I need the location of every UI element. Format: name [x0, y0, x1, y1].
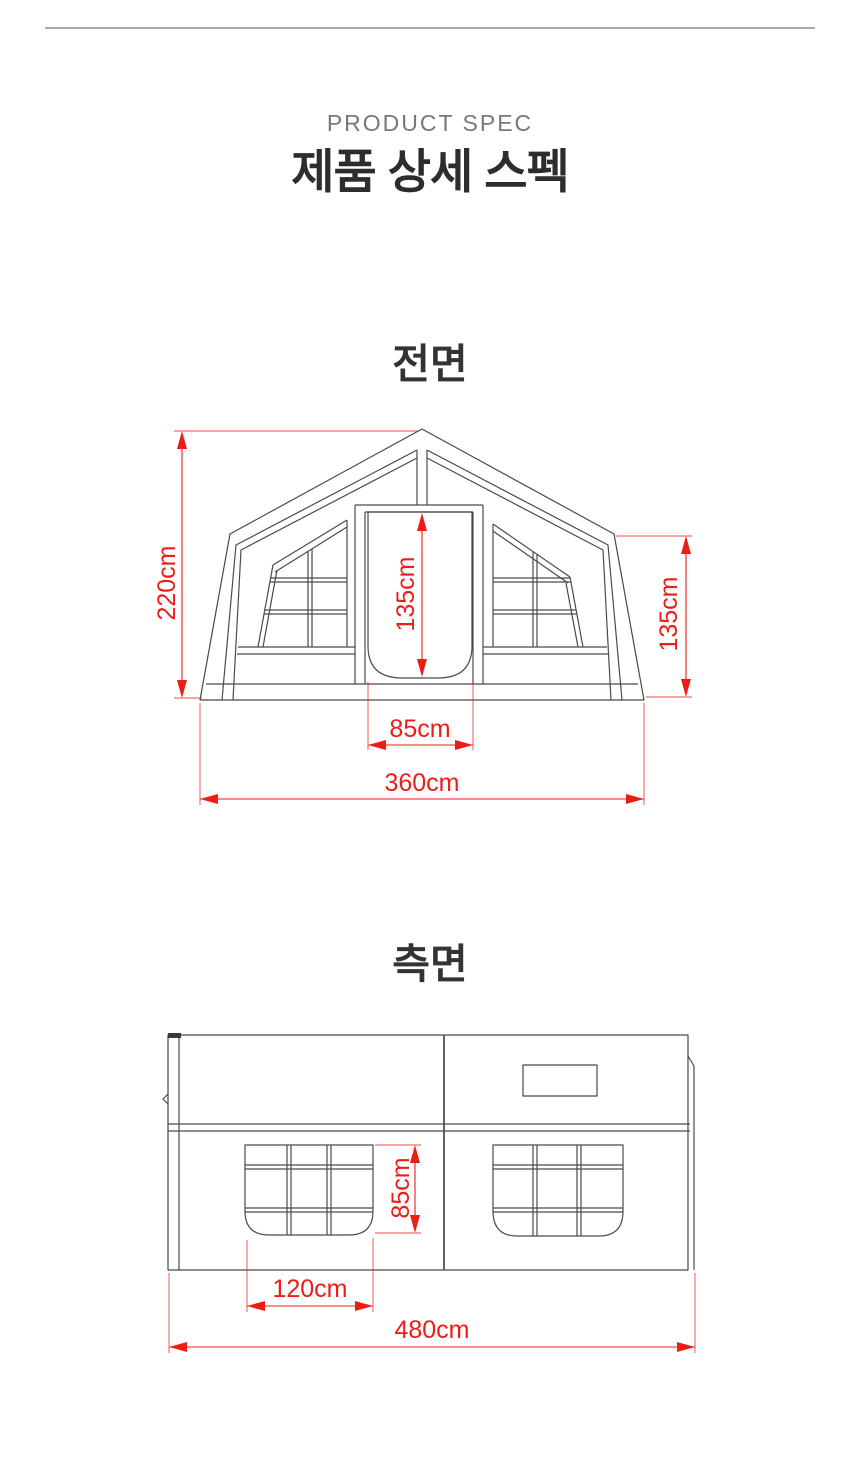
- side-view-dimensions: 85cm 120cm 480cm: [169, 1145, 695, 1353]
- front-total-height-label: 220cm: [153, 545, 181, 620]
- product-spec-page: PRODUCT SPEC 제품 상세 스펙 전면: [0, 0, 860, 1472]
- center-pole: [417, 450, 427, 505]
- arrow-down: [177, 680, 187, 698]
- page-title: 제품 상세 스펙: [0, 133, 860, 202]
- front-view-heading: 전면: [0, 330, 860, 390]
- side-window-width-label: 120cm: [272, 1275, 347, 1303]
- front-door-width-label: 85cm: [389, 715, 450, 743]
- tent-side-structure: [163, 1033, 694, 1270]
- top-left-tab: [168, 1033, 181, 1038]
- arrow-down: [417, 659, 427, 677]
- eave-band: [168, 1124, 690, 1131]
- vent-window: [523, 1065, 597, 1096]
- front-total-width-label: 360cm: [384, 769, 459, 797]
- front-view-dimensions: 220cm 135cm 135cm 85cm 360cm: [153, 431, 692, 805]
- front-right-window: [493, 524, 583, 647]
- arrow-left: [368, 740, 386, 750]
- arrow-right: [455, 740, 473, 750]
- door-panel: [368, 512, 472, 678]
- top-divider: [45, 27, 815, 29]
- front-wall-height-label: 135cm: [655, 576, 683, 651]
- arrow-right: [626, 794, 644, 804]
- right-edge-flap: [688, 1056, 694, 1270]
- side-view-diagram: 85cm 120cm 480cm: [60, 1020, 810, 1365]
- arrow-down: [681, 679, 691, 697]
- left-edge-notch: [163, 1094, 168, 1104]
- arrow-right: [355, 1301, 373, 1311]
- arrow-left: [247, 1301, 265, 1311]
- arrow-up: [177, 431, 187, 449]
- side-left-window: [245, 1145, 373, 1235]
- side-view-heading: 측면: [0, 930, 860, 990]
- arrow-up: [681, 536, 691, 554]
- front-view-diagram: 220cm 135cm 135cm 85cm 360cm: [140, 412, 700, 814]
- arrow-left: [169, 1342, 187, 1352]
- side-right-window: [493, 1145, 623, 1236]
- arrow-right: [677, 1342, 695, 1352]
- arrow-left: [200, 794, 218, 804]
- side-total-length-label: 480cm: [394, 1316, 469, 1344]
- arrow-up: [417, 513, 427, 531]
- side-window-height-label: 85cm: [387, 1157, 415, 1218]
- front-door-height-label: 135cm: [392, 556, 420, 631]
- front-left-window: [258, 520, 347, 647]
